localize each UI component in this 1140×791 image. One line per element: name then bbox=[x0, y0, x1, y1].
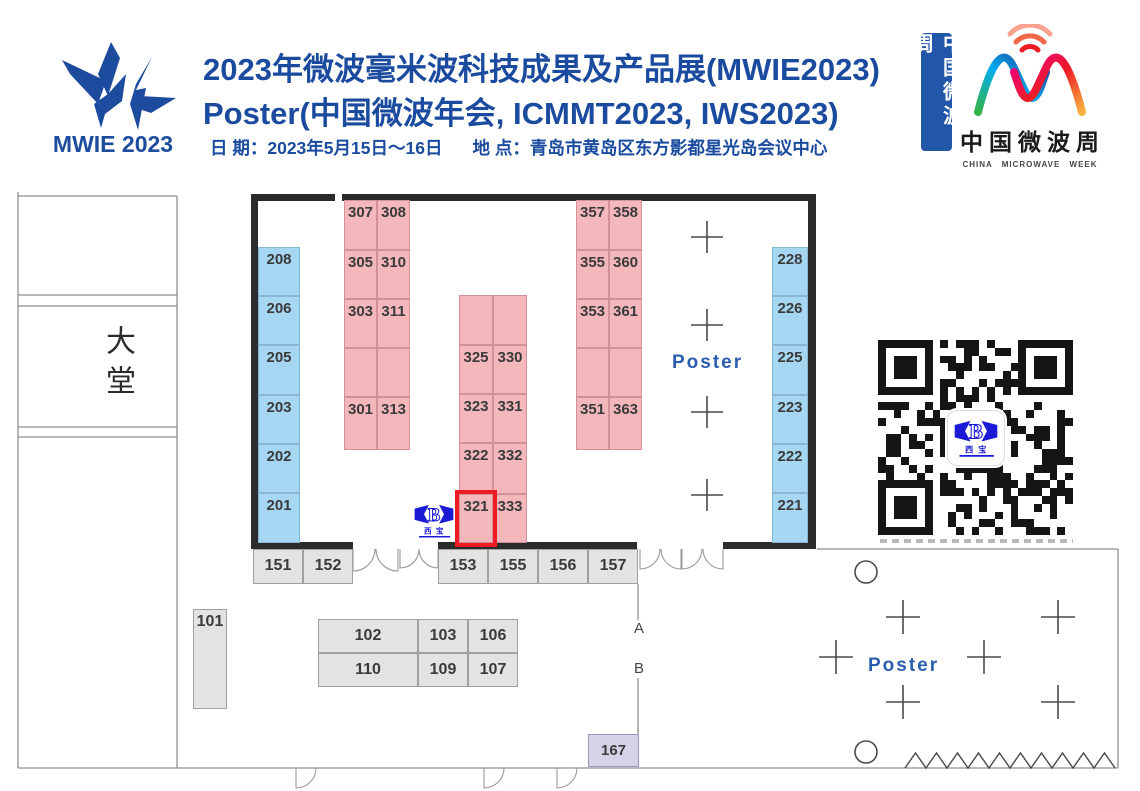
qr-module bbox=[925, 402, 933, 410]
qr-module bbox=[964, 480, 972, 488]
qr-module bbox=[979, 410, 987, 418]
qr-module bbox=[1034, 363, 1042, 371]
qr-module bbox=[1050, 519, 1058, 527]
qr-module bbox=[1003, 340, 1011, 348]
qr-module bbox=[948, 441, 956, 449]
qr-module bbox=[948, 387, 956, 395]
qr-module bbox=[956, 348, 964, 356]
booth-label: 353 bbox=[580, 303, 605, 320]
qr-module bbox=[972, 504, 980, 512]
qr-module bbox=[925, 473, 933, 481]
booth-label: 325 bbox=[463, 349, 488, 366]
booth-202: 202 bbox=[258, 444, 300, 493]
qr-module bbox=[1018, 473, 1026, 481]
booth-153: 153 bbox=[438, 549, 488, 584]
qr-module bbox=[1003, 527, 1011, 535]
qr-module bbox=[995, 340, 1003, 348]
qr-module bbox=[940, 519, 948, 527]
qr-module bbox=[972, 434, 980, 442]
booth-156: 156 bbox=[538, 549, 588, 584]
qr-module bbox=[1026, 356, 1034, 364]
qr-module bbox=[972, 480, 980, 488]
booth-151: 151 bbox=[253, 549, 303, 584]
qr-module bbox=[933, 395, 941, 403]
qr-module bbox=[1003, 480, 1011, 488]
qr-module bbox=[948, 426, 956, 434]
qr-module bbox=[894, 496, 902, 504]
qr-module bbox=[1026, 426, 1034, 434]
qr-module bbox=[1026, 527, 1034, 535]
qr-module bbox=[1042, 387, 1050, 395]
qr-module bbox=[979, 348, 987, 356]
qr-module bbox=[1042, 519, 1050, 527]
qr-module bbox=[925, 512, 933, 520]
qr-module bbox=[964, 449, 972, 457]
qr-module bbox=[972, 465, 980, 473]
qr-module bbox=[925, 434, 933, 442]
qr-module bbox=[956, 395, 964, 403]
qr-module bbox=[1018, 434, 1026, 442]
qr-module bbox=[1026, 402, 1034, 410]
qr-module bbox=[917, 488, 925, 496]
qr-module bbox=[1034, 410, 1042, 418]
qr-module bbox=[995, 473, 1003, 481]
booth-label: 360 bbox=[613, 254, 638, 271]
booth-205: 205 bbox=[258, 345, 300, 395]
outdoor-poster-label: Poster bbox=[868, 655, 939, 677]
qr-module bbox=[972, 519, 980, 527]
qr-module bbox=[886, 363, 894, 371]
qr-module bbox=[964, 348, 972, 356]
qr-module bbox=[933, 387, 941, 395]
qr-module bbox=[972, 418, 980, 426]
qr-module bbox=[1018, 527, 1026, 535]
qr-module bbox=[917, 387, 925, 395]
booth-empty bbox=[344, 348, 377, 397]
qr-module bbox=[917, 340, 925, 348]
qr-module bbox=[1065, 395, 1073, 403]
booth-label: 333 bbox=[497, 498, 522, 515]
qr-module bbox=[909, 371, 917, 379]
qr-module bbox=[1018, 519, 1026, 527]
qr-module bbox=[878, 387, 886, 395]
qr-module bbox=[1034, 512, 1042, 520]
qr-module bbox=[909, 488, 917, 496]
qr-module bbox=[933, 480, 941, 488]
booth-355: 355 bbox=[576, 250, 609, 299]
qr-module bbox=[925, 426, 933, 434]
booth-label: 103 bbox=[430, 627, 457, 645]
booth-label: 358 bbox=[613, 204, 638, 221]
qr-module bbox=[956, 434, 964, 442]
booth-106: 106 bbox=[468, 619, 518, 653]
qr-module bbox=[886, 387, 894, 395]
qr-module bbox=[987, 473, 995, 481]
qr-module bbox=[917, 418, 925, 426]
qr-module bbox=[948, 473, 956, 481]
qr-module bbox=[1011, 473, 1019, 481]
qr-module bbox=[948, 449, 956, 457]
qr-module bbox=[1003, 496, 1011, 504]
qr-module bbox=[1042, 465, 1050, 473]
booth-223: 223 bbox=[772, 395, 808, 444]
qr-module bbox=[917, 356, 925, 364]
qr-module bbox=[1050, 402, 1058, 410]
qr-module bbox=[948, 371, 956, 379]
qr-module bbox=[964, 488, 972, 496]
qr-module bbox=[1026, 496, 1034, 504]
qr-module bbox=[956, 512, 964, 520]
booth-167: 167 bbox=[588, 734, 639, 767]
qr-module bbox=[933, 512, 941, 520]
qr-module bbox=[901, 527, 909, 535]
qr-module bbox=[972, 449, 980, 457]
qr-module bbox=[878, 473, 886, 481]
qr-module bbox=[1003, 363, 1011, 371]
qr-module bbox=[987, 441, 995, 449]
qr-module bbox=[894, 434, 902, 442]
qr-module bbox=[940, 410, 948, 418]
qr-module bbox=[1050, 418, 1058, 426]
qr-module bbox=[972, 496, 980, 504]
qr-module bbox=[948, 527, 956, 535]
qr-module bbox=[940, 340, 948, 348]
booth-360: 360 bbox=[609, 250, 642, 299]
qr-module bbox=[917, 434, 925, 442]
qr-module bbox=[940, 496, 948, 504]
qr-module bbox=[878, 512, 886, 520]
qr-module bbox=[917, 441, 925, 449]
qr-module bbox=[878, 519, 886, 527]
qr-module bbox=[1011, 457, 1019, 465]
qr-module bbox=[1034, 402, 1042, 410]
qr-module bbox=[972, 348, 980, 356]
qr-module bbox=[948, 410, 956, 418]
booth-301: 301 bbox=[344, 397, 377, 450]
qr-module bbox=[1018, 348, 1026, 356]
qr-module bbox=[956, 519, 964, 527]
booth-label: 201 bbox=[266, 497, 291, 514]
qr-module bbox=[894, 465, 902, 473]
booth-311: 311 bbox=[377, 299, 410, 348]
qr-module bbox=[1011, 356, 1019, 364]
booth-325: 325 bbox=[459, 345, 493, 394]
qr-module bbox=[917, 426, 925, 434]
booth-label: 153 bbox=[450, 557, 477, 575]
qr-module bbox=[948, 480, 956, 488]
qr-module bbox=[940, 379, 948, 387]
qr-module bbox=[1057, 379, 1065, 387]
qr-module bbox=[925, 457, 933, 465]
qr-module bbox=[1011, 426, 1019, 434]
qr-module bbox=[964, 504, 972, 512]
qr-module bbox=[917, 473, 925, 481]
qr-module bbox=[1003, 504, 1011, 512]
qr-module bbox=[987, 418, 995, 426]
booth-label: 308 bbox=[381, 204, 406, 221]
qr-module bbox=[886, 434, 894, 442]
qr-module bbox=[940, 418, 948, 426]
qr-module bbox=[901, 356, 909, 364]
booth-label: 363 bbox=[613, 401, 638, 418]
qr-module bbox=[901, 496, 909, 504]
qr-module bbox=[894, 418, 902, 426]
booth-label: 351 bbox=[580, 401, 605, 418]
qr-module bbox=[995, 426, 1003, 434]
qr-module bbox=[933, 379, 941, 387]
qr-module bbox=[995, 488, 1003, 496]
qr-module bbox=[1034, 348, 1042, 356]
qr-module bbox=[972, 395, 980, 403]
qr-module bbox=[1065, 465, 1073, 473]
booth-label: 228 bbox=[777, 251, 802, 268]
booth-label: 323 bbox=[463, 398, 488, 415]
qr-module bbox=[1050, 512, 1058, 520]
qr-module bbox=[995, 441, 1003, 449]
qr-module bbox=[956, 449, 964, 457]
qr-module bbox=[995, 480, 1003, 488]
qr-module bbox=[979, 465, 987, 473]
qr-module bbox=[894, 519, 902, 527]
qr-module bbox=[956, 371, 964, 379]
qr-module bbox=[886, 379, 894, 387]
qr-module bbox=[894, 348, 902, 356]
qr-module bbox=[1057, 496, 1065, 504]
entrance-label-a: A bbox=[630, 620, 648, 637]
qr-module bbox=[1065, 504, 1073, 512]
qr-module bbox=[964, 512, 972, 520]
qr-module bbox=[1050, 340, 1058, 348]
qr-module bbox=[901, 488, 909, 496]
qr-module bbox=[878, 465, 886, 473]
qr-module bbox=[995, 402, 1003, 410]
qr-module bbox=[948, 434, 956, 442]
qr-module bbox=[1057, 480, 1065, 488]
qr-module bbox=[987, 465, 995, 473]
qr-module bbox=[956, 441, 964, 449]
qr-module bbox=[894, 410, 902, 418]
booth-label: 332 bbox=[497, 447, 522, 464]
qr-module bbox=[933, 441, 941, 449]
booth-label: 313 bbox=[381, 401, 406, 418]
qr-module bbox=[948, 395, 956, 403]
booth-label: 157 bbox=[600, 557, 627, 575]
qr-module bbox=[964, 379, 972, 387]
qr-module bbox=[917, 465, 925, 473]
qr-module bbox=[1065, 434, 1073, 442]
qr-module bbox=[1065, 473, 1073, 481]
qr-module bbox=[878, 496, 886, 504]
qr-code bbox=[878, 340, 1073, 535]
qr-module bbox=[956, 465, 964, 473]
qr-module bbox=[1003, 488, 1011, 496]
qr-module bbox=[1050, 371, 1058, 379]
qr-module bbox=[901, 512, 909, 520]
qr-module bbox=[1042, 488, 1050, 496]
qr-module bbox=[995, 418, 1003, 426]
qr-module bbox=[972, 441, 980, 449]
qr-module bbox=[1050, 379, 1058, 387]
qr-module bbox=[917, 519, 925, 527]
qr-module bbox=[1065, 356, 1073, 364]
qr-module bbox=[972, 387, 980, 395]
qr-module bbox=[917, 395, 925, 403]
qr-module bbox=[1003, 371, 1011, 379]
qr-module bbox=[995, 527, 1003, 535]
qr-module bbox=[1026, 504, 1034, 512]
qr-module bbox=[1003, 434, 1011, 442]
qr-module bbox=[948, 363, 956, 371]
qr-module bbox=[878, 356, 886, 364]
qr-module bbox=[972, 457, 980, 465]
qr-module bbox=[1026, 512, 1034, 520]
qr-module bbox=[987, 519, 995, 527]
qr-module bbox=[925, 488, 933, 496]
qr-module bbox=[886, 480, 894, 488]
qr-module bbox=[901, 371, 909, 379]
qr-module bbox=[1011, 512, 1019, 520]
qr-module bbox=[917, 480, 925, 488]
qr-module bbox=[1042, 418, 1050, 426]
qr-module bbox=[995, 356, 1003, 364]
qr-module bbox=[1003, 387, 1011, 395]
qr-module bbox=[972, 473, 980, 481]
xibao-vendor-logo bbox=[414, 502, 454, 539]
booth-358: 358 bbox=[609, 200, 642, 250]
qr-module bbox=[979, 457, 987, 465]
booth-222: 222 bbox=[772, 444, 808, 493]
qr-module bbox=[1011, 379, 1019, 387]
qr-module bbox=[979, 512, 987, 520]
qr-module bbox=[909, 363, 917, 371]
qr-module bbox=[940, 465, 948, 473]
booth-label: 307 bbox=[348, 204, 373, 221]
qr-module bbox=[925, 356, 933, 364]
qr-module bbox=[1057, 488, 1065, 496]
qr-module bbox=[1034, 457, 1042, 465]
qr-module bbox=[886, 418, 894, 426]
booth-label: 203 bbox=[266, 399, 291, 416]
qr-module bbox=[894, 449, 902, 457]
booth-label: 109 bbox=[430, 661, 457, 679]
qr-module bbox=[917, 527, 925, 535]
qr-module bbox=[1034, 496, 1042, 504]
qr-module bbox=[878, 340, 886, 348]
qr-module bbox=[1026, 488, 1034, 496]
qr-module bbox=[1026, 449, 1034, 457]
qr-module bbox=[956, 363, 964, 371]
qr-module bbox=[1011, 488, 1019, 496]
qr-module bbox=[956, 480, 964, 488]
qr-module bbox=[1011, 395, 1019, 403]
booth-109: 109 bbox=[418, 653, 468, 687]
qr-module bbox=[940, 387, 948, 395]
qr-module bbox=[1057, 363, 1065, 371]
qr-module bbox=[925, 371, 933, 379]
booth-label: 206 bbox=[266, 300, 291, 317]
qr-module bbox=[940, 449, 948, 457]
qr-module bbox=[1018, 340, 1026, 348]
qr-module bbox=[894, 488, 902, 496]
qr-module bbox=[933, 434, 941, 442]
qr-module bbox=[948, 465, 956, 473]
qr-module bbox=[948, 504, 956, 512]
qr-module bbox=[901, 402, 909, 410]
booth-333: 333 bbox=[493, 494, 527, 543]
qr-module bbox=[1003, 379, 1011, 387]
qr-module bbox=[940, 527, 948, 535]
qr-module bbox=[979, 519, 987, 527]
qr-module bbox=[1057, 426, 1065, 434]
booth-208: 208 bbox=[258, 247, 300, 296]
qr-module bbox=[956, 496, 964, 504]
qr-module bbox=[1018, 480, 1026, 488]
qr-module bbox=[964, 441, 972, 449]
qr-module bbox=[894, 402, 902, 410]
qr-module bbox=[901, 418, 909, 426]
qr-module bbox=[995, 512, 1003, 520]
qr-module bbox=[1003, 348, 1011, 356]
booth-label: 167 bbox=[601, 742, 626, 759]
qr-module bbox=[964, 465, 972, 473]
qr-module bbox=[1034, 387, 1042, 395]
qr-module bbox=[933, 488, 941, 496]
qr-module bbox=[1026, 434, 1034, 442]
qr-module bbox=[1034, 434, 1042, 442]
qr-module bbox=[1034, 356, 1042, 364]
qr-module bbox=[979, 488, 987, 496]
qr-module bbox=[1018, 457, 1026, 465]
qr-module bbox=[925, 496, 933, 504]
qr-module bbox=[886, 441, 894, 449]
qr-module bbox=[1011, 434, 1019, 442]
qr-module bbox=[1065, 457, 1073, 465]
booth-206: 206 bbox=[258, 296, 300, 345]
qr-module bbox=[1018, 441, 1026, 449]
qr-module bbox=[1057, 519, 1065, 527]
booth-332: 332 bbox=[493, 443, 527, 494]
qr-module bbox=[909, 441, 917, 449]
qr-module bbox=[1065, 488, 1073, 496]
booth-308: 308 bbox=[377, 200, 410, 250]
qr-module bbox=[995, 387, 1003, 395]
qr-module bbox=[1050, 363, 1058, 371]
booth-307: 307 bbox=[344, 200, 377, 250]
booth-363: 363 bbox=[609, 397, 642, 450]
qr-module bbox=[1026, 348, 1034, 356]
qr-module bbox=[901, 363, 909, 371]
qr-module bbox=[964, 418, 972, 426]
qr-module bbox=[1034, 441, 1042, 449]
qr-module bbox=[964, 527, 972, 535]
qr-module bbox=[901, 457, 909, 465]
qr-module bbox=[1018, 395, 1026, 403]
qr-module bbox=[1057, 418, 1065, 426]
booth-label: 102 bbox=[355, 627, 382, 645]
qr-module bbox=[995, 348, 1003, 356]
qr-module bbox=[940, 371, 948, 379]
qr-module bbox=[1034, 371, 1042, 379]
qr-module bbox=[1050, 473, 1058, 481]
qr-module bbox=[894, 387, 902, 395]
qr-module bbox=[972, 356, 980, 364]
qr-module bbox=[987, 348, 995, 356]
qr-module bbox=[1034, 465, 1042, 473]
qr-module bbox=[909, 402, 917, 410]
booth-empty bbox=[576, 348, 609, 397]
qr-module bbox=[948, 340, 956, 348]
qr-module bbox=[1057, 512, 1065, 520]
